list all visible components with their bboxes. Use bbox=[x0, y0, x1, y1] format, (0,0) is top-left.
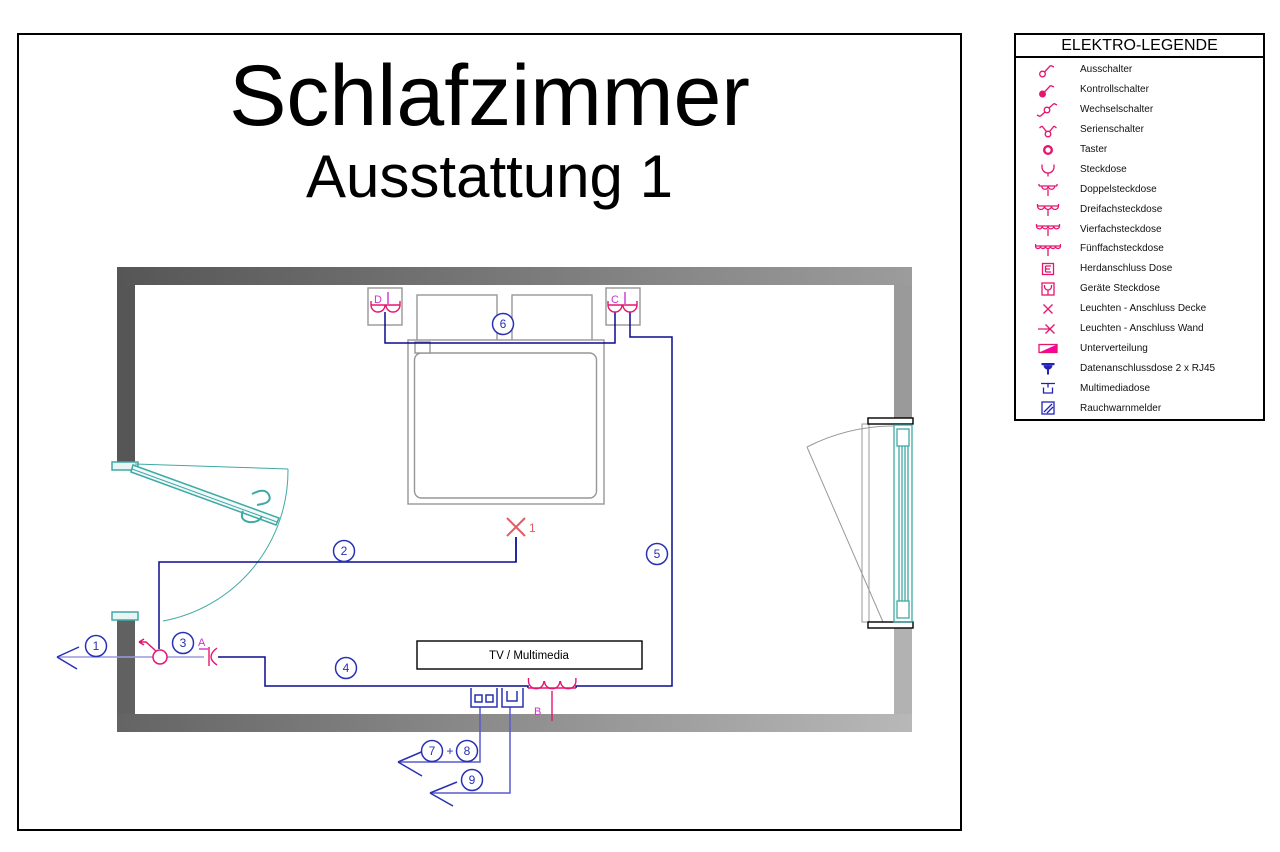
vierfachsteckdose-icon bbox=[1035, 221, 1061, 237]
legend-item-label: Herdanschluss Dose bbox=[1080, 263, 1172, 274]
ceiling-light bbox=[507, 518, 525, 562]
datenanschlussdose-icon bbox=[1035, 360, 1061, 376]
tv-multimedia-label: TV / Multimedia bbox=[489, 650, 569, 662]
legend-panel: ELEKTRO-LEGENDE Ausschalter Kontrollscha… bbox=[1014, 33, 1265, 421]
circuit-badge-5: 5 bbox=[647, 544, 668, 565]
ausschalter-icon bbox=[1035, 62, 1061, 78]
unterverteilung-icon bbox=[1035, 340, 1061, 356]
kontrollschalter-icon bbox=[1035, 82, 1061, 98]
svg-text:7: 7 bbox=[429, 744, 436, 758]
socket-c-label: C bbox=[611, 294, 619, 306]
leuchten-anschluss-decke-icon bbox=[1035, 301, 1061, 317]
legend-item: Fünffachsteckdose bbox=[1016, 239, 1263, 259]
legend-item: Leuchten - Anschluss Wand bbox=[1016, 319, 1263, 339]
svg-text:5: 5 bbox=[654, 547, 661, 561]
legend-item-label: Vierfachsteckdose bbox=[1080, 224, 1162, 235]
legend-item: Rauchwarnmelder bbox=[1016, 398, 1263, 418]
legend-item-label: Unterverteilung bbox=[1080, 343, 1148, 354]
legend-item: Steckdose bbox=[1016, 159, 1263, 179]
circuit-badge-3: 3 bbox=[173, 633, 194, 654]
socket-d-label: D bbox=[374, 294, 382, 306]
door bbox=[112, 462, 288, 621]
circuit-badge-7: 7 bbox=[422, 741, 443, 762]
legend-item-label: Geräte Steckdose bbox=[1080, 283, 1160, 294]
drawing-sheet: Schlafzimmer Ausstattung 1 bbox=[0, 0, 1280, 852]
svg-text:1: 1 bbox=[93, 639, 100, 653]
pillow-left bbox=[417, 295, 497, 341]
legend-item-label: Kontrollschalter bbox=[1080, 84, 1149, 95]
dreifachsteckdose-icon bbox=[1035, 201, 1061, 217]
window bbox=[807, 418, 913, 628]
circuit-badge-1: 1 bbox=[86, 636, 107, 657]
svg-text:6: 6 bbox=[500, 317, 507, 331]
legend-item: Vierfachsteckdose bbox=[1016, 219, 1263, 239]
svg-text:2: 2 bbox=[341, 544, 348, 558]
legend-item: Kontrollschalter bbox=[1016, 80, 1263, 100]
socket-b-label: B bbox=[534, 706, 541, 718]
steckdose-icon bbox=[1035, 161, 1061, 177]
tv-multimedia-box: TV / Multimedia bbox=[417, 641, 642, 669]
svg-text:3: 3 bbox=[180, 636, 187, 650]
legend-item-label: Fünffachsteckdose bbox=[1080, 243, 1164, 254]
legend-item-label: Leuchten - Anschluss Decke bbox=[1080, 303, 1206, 314]
ceiling-light-label: 1 bbox=[529, 521, 536, 535]
legend-item-label: Serienschalter bbox=[1080, 124, 1144, 135]
svg-text:8: 8 bbox=[464, 744, 471, 758]
legend-item-label: Taster bbox=[1080, 144, 1107, 155]
circuit-badge-6: 6 bbox=[493, 314, 514, 335]
multimedia-outlet bbox=[502, 688, 523, 707]
legend-item-label: Multimediadose bbox=[1080, 383, 1150, 394]
leuchten-anschluss-wand-icon bbox=[1035, 321, 1061, 337]
legend-item-label: Rauchwarnmelder bbox=[1080, 403, 1161, 414]
legend-item: Dreifachsteckdose bbox=[1016, 199, 1263, 219]
legend-title: ELEKTRO-LEGENDE bbox=[1016, 35, 1263, 58]
legend-item: Datenanschlussdose 2 x RJ45 bbox=[1016, 358, 1263, 378]
svg-text:9: 9 bbox=[469, 773, 476, 787]
exit-arrow-1 bbox=[57, 647, 79, 669]
multimediadose-icon bbox=[1035, 380, 1061, 396]
herdanschluss-dose-icon bbox=[1035, 261, 1061, 277]
legend-item: Taster bbox=[1016, 140, 1263, 160]
legend-item-label: Datenanschlussdose 2 x RJ45 bbox=[1080, 363, 1215, 374]
rauchwarnmelder-icon bbox=[1035, 400, 1061, 416]
legend-item: Ausschalter bbox=[1016, 60, 1263, 80]
legend-item-label: Doppelsteckdose bbox=[1080, 184, 1157, 195]
legend-item: Serienschalter bbox=[1016, 120, 1263, 140]
circuit-badge-4: 4 bbox=[336, 658, 357, 679]
serienschalter-icon bbox=[1035, 122, 1061, 138]
fuenffachsteckdose-icon bbox=[1035, 241, 1061, 257]
legend-item: Geräte Steckdose bbox=[1016, 279, 1263, 299]
circuit-badge-2: 2 bbox=[334, 541, 355, 562]
legend-item-label: Steckdose bbox=[1080, 164, 1127, 175]
svg-text:4: 4 bbox=[343, 661, 350, 675]
legend-item-label: Dreifachsteckdose bbox=[1080, 204, 1162, 215]
circuit-badge-8: 8 bbox=[457, 741, 478, 762]
legend-item-label: Ausschalter bbox=[1080, 64, 1132, 75]
plus-sign: + bbox=[446, 744, 453, 758]
legend-item: Wechselschalter bbox=[1016, 100, 1263, 120]
circuit-badge-9: 9 bbox=[462, 770, 483, 791]
legend-item: Multimediadose bbox=[1016, 378, 1263, 398]
legend-item-label: Wechselschalter bbox=[1080, 104, 1153, 115]
wechselschalter-icon bbox=[1035, 102, 1061, 118]
light-switch bbox=[139, 639, 167, 664]
doppelsteckdose-icon bbox=[1035, 181, 1061, 197]
geraete-steckdose-icon bbox=[1035, 281, 1061, 297]
legend-item: Herdanschluss Dose bbox=[1016, 259, 1263, 279]
floor-plan: TV / Multimedia bbox=[17, 33, 962, 831]
taster-icon bbox=[1035, 142, 1061, 158]
legend-item: Doppelsteckdose bbox=[1016, 179, 1263, 199]
pillow-right bbox=[512, 295, 592, 341]
legend-items: Ausschalter Kontrollschalter Wechselscha… bbox=[1016, 58, 1263, 418]
socket-a-label: A bbox=[198, 637, 206, 649]
legend-item: Unterverteilung bbox=[1016, 338, 1263, 358]
legend-item-label: Leuchten - Anschluss Wand bbox=[1080, 323, 1204, 334]
legend-item: Leuchten - Anschluss Decke bbox=[1016, 299, 1263, 319]
data-outlet bbox=[471, 688, 497, 707]
